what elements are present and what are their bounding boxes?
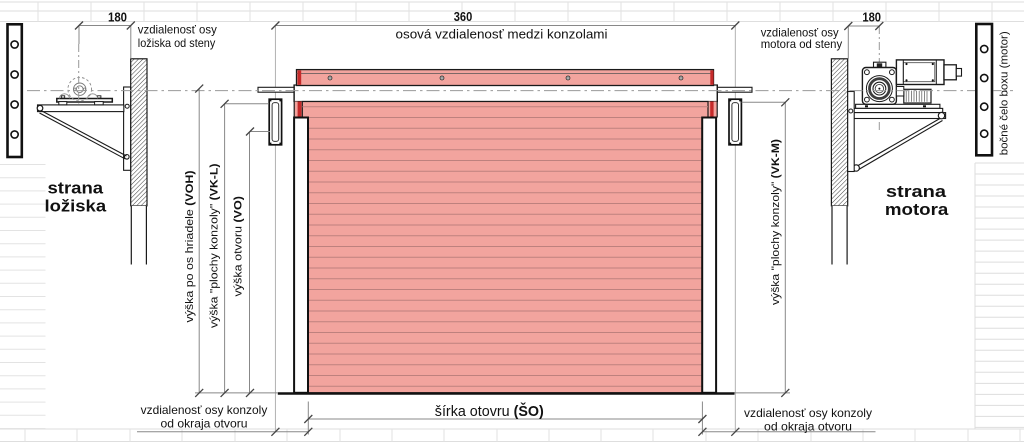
svg-text:ložiska: ložiska: [45, 197, 107, 216]
svg-text:ložiska od steny: ložiska od steny: [138, 36, 216, 50]
svg-text:180: 180: [108, 9, 127, 24]
svg-text:strana: strana: [886, 182, 947, 201]
svg-text:od okraja otvoru: od okraja otvoru: [161, 416, 248, 430]
svg-text:motora: motora: [885, 200, 949, 219]
svg-text:osová vzdialenosť medzi konzol: osová vzdialenosť medzi konzolami: [396, 27, 608, 42]
svg-text:vzdialenosť osy konzoly: vzdialenosť osy konzoly: [744, 406, 872, 420]
svg-text:výška "plochy konzoly" (VK-M): výška "plochy konzoly" (VK-M): [770, 139, 782, 305]
svg-text:výška po os hriadele (VOH): výška po os hriadele (VOH): [184, 170, 196, 322]
svg-text:vzdialenosť osy: vzdialenosť osy: [138, 23, 217, 37]
svg-text:šírka otovru (ŠO): šírka otovru (ŠO): [435, 402, 544, 420]
svg-text:strana: strana: [48, 179, 104, 198]
svg-text:výška otvoru (VO): výška otvoru (VO): [233, 196, 245, 297]
svg-text:vzdialenosť osy konzoly: vzdialenosť osy konzoly: [141, 403, 268, 417]
svg-text:motora od steny: motora od steny: [761, 37, 843, 51]
svg-text:360: 360: [454, 9, 473, 24]
svg-text:výška "plochy konzoly" (VK-L): výška "plochy konzoly" (VK-L): [208, 163, 220, 328]
svg-text:bočné čelo boxu (motor): bočné čelo boxu (motor): [999, 31, 1011, 155]
svg-text:od okraja otvoru: od okraja otvoru: [764, 419, 852, 433]
svg-text:180: 180: [862, 9, 881, 24]
